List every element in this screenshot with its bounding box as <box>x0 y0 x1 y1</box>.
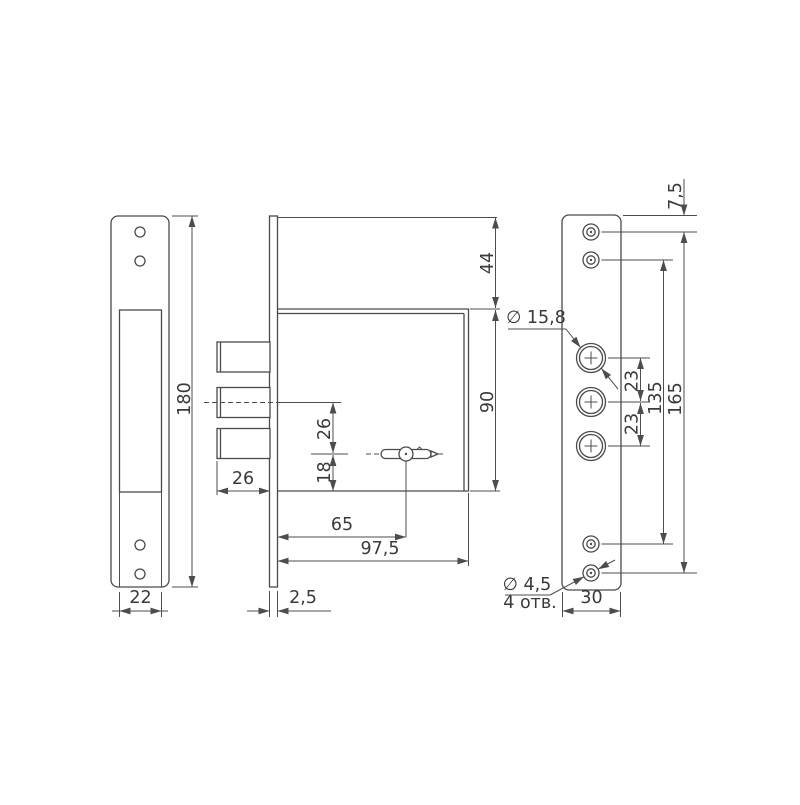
diameter-label-4-5: ∅ 4,5 <box>503 575 552 595</box>
screw-hole-top-2 <box>583 252 599 268</box>
strike-cutout <box>120 310 162 492</box>
dim-label-30: 30 <box>580 588 602 608</box>
dim-label-180: 180 <box>175 382 195 415</box>
dim-label-165: 165 <box>666 382 686 415</box>
center-dot <box>590 572 592 574</box>
dim-label-23: 23 <box>623 370 643 392</box>
dim-label-18: 18 <box>315 461 335 483</box>
dim-label-7-5: 7,5 <box>666 182 686 210</box>
faceplate-edge <box>270 216 278 587</box>
dim-label-23: 23 <box>623 413 643 435</box>
lock-technical-drawing: 180 22 <box>0 0 800 800</box>
screw-hole <box>135 227 145 237</box>
center-dot <box>590 231 592 233</box>
screw-hole-bottom-2 <box>583 565 599 581</box>
center-dot <box>590 259 592 261</box>
deadbolt <box>217 342 270 372</box>
dim-label-26: 26 <box>232 469 254 489</box>
deadbolt <box>217 429 270 459</box>
dim-label-65: 65 <box>331 515 353 535</box>
dim-label-97-5: 97,5 <box>361 539 400 559</box>
dim-7-5: 7,5 <box>666 179 686 216</box>
technical-drawing-page: 180 22 <box>0 0 800 800</box>
hole-count-label: 4 отв. <box>503 593 556 613</box>
screw-hole <box>135 256 145 266</box>
screw-hole-top-1 <box>583 224 599 240</box>
bolt-hole-1 <box>577 344 606 373</box>
dim-label-22: 22 <box>129 588 151 608</box>
center-dot <box>590 543 592 545</box>
bolt-hole-2 <box>577 388 606 417</box>
dim-label-44: 44 <box>478 252 498 274</box>
screw-hole-bottom-1 <box>583 536 599 552</box>
dim-label-26: 26 <box>315 418 335 440</box>
diameter-label-15-8: ∅ 15,8 <box>506 308 566 328</box>
screw-hole <box>135 540 145 550</box>
dim-label-135: 135 <box>646 381 666 414</box>
dim-label-2-5: 2,5 <box>289 588 317 608</box>
bolt-hole-3 <box>577 432 606 461</box>
screw-hole <box>135 569 145 579</box>
keyhole-center-dot <box>405 453 407 455</box>
dim-label-90: 90 <box>478 391 498 413</box>
